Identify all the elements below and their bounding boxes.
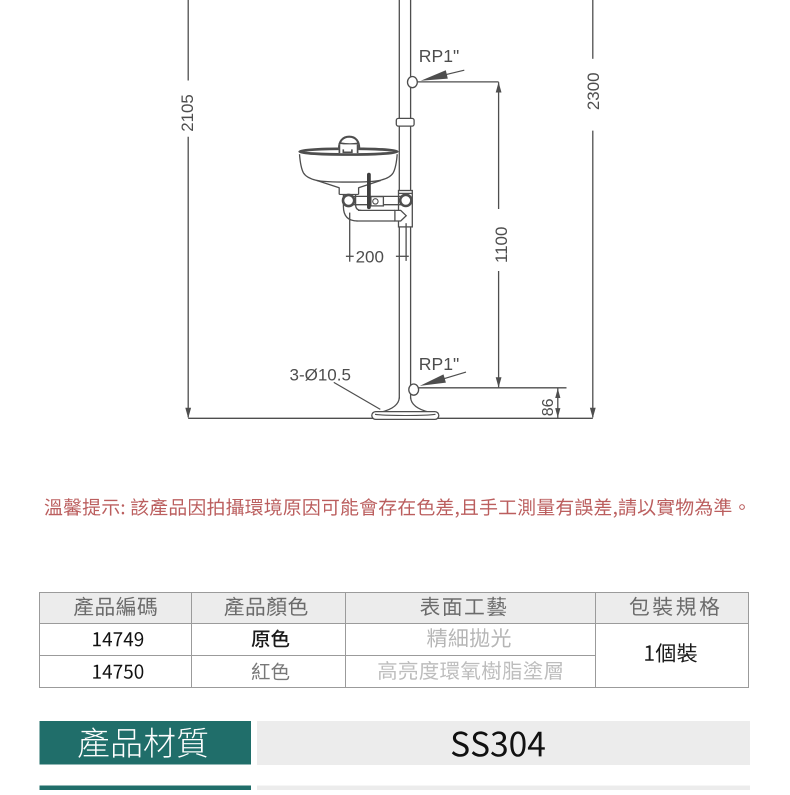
svg-text:200: 200 xyxy=(356,248,384,267)
svg-text:RP1": RP1" xyxy=(419,354,459,374)
svg-text:1100: 1100 xyxy=(492,227,511,263)
svg-text:3-Ø10.5: 3-Ø10.5 xyxy=(290,366,351,385)
svg-text:RP1": RP1" xyxy=(419,46,459,66)
svg-text:2300: 2300 xyxy=(584,73,603,111)
svg-text:86: 86 xyxy=(540,398,557,416)
svg-text:2105: 2105 xyxy=(178,94,197,132)
